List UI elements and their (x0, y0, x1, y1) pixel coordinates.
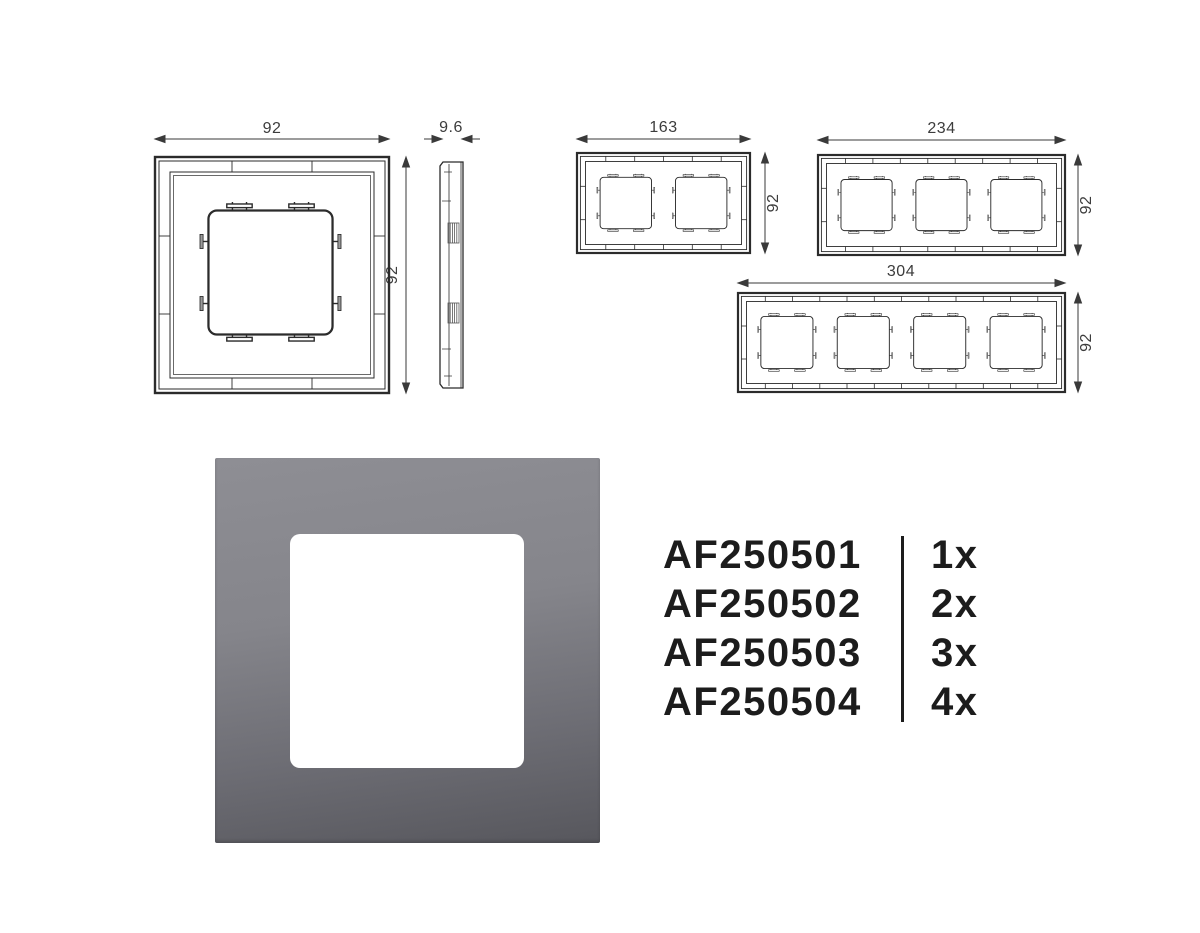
product-photo-window (290, 534, 524, 768)
one-gang-front-drawing: 92 92 (148, 112, 418, 398)
two-gang-front-drawing: 163 92 (565, 112, 793, 270)
product-table: AF250501 AF250502 AF250503 AF250504 1x 2… (663, 531, 979, 727)
three-gang-front-drawing: 234 92 (806, 112, 1108, 270)
table-divider (901, 536, 904, 722)
product-code: AF250501 (663, 531, 871, 580)
dim-label-height-3gang: 92 (1078, 196, 1095, 215)
dim-label-width-4gang: 304 (887, 263, 915, 280)
product-code-column: AF250501 AF250502 AF250503 AF250504 (663, 531, 871, 727)
product-code: AF250504 (663, 678, 871, 727)
product-quantity: 1x (931, 531, 979, 580)
side-profile-drawing: 9.6 (418, 112, 486, 398)
dim-label-height-2gang: 92 (765, 194, 782, 213)
four-gang-front-drawing: 304 92 (723, 250, 1105, 402)
dim-label-height-4gang: 92 (1078, 333, 1095, 352)
dim-label-width-3gang: 234 (927, 120, 955, 137)
product-photo-1gang-frame (215, 458, 600, 843)
product-code: AF250502 (663, 580, 871, 629)
dim-label-height-1gang: 92 (384, 266, 401, 285)
product-quantity: 3x (931, 629, 979, 678)
product-quantity: 4x (931, 678, 979, 727)
dim-label-depth: 9.6 (439, 119, 463, 136)
dim-label-width-1gang: 92 (263, 120, 282, 137)
product-code: AF250503 (663, 629, 871, 678)
product-quantity: 2x (931, 580, 979, 629)
product-quantity-column: 1x 2x 3x 4x (931, 531, 979, 727)
dim-label-width-2gang: 163 (649, 119, 677, 136)
